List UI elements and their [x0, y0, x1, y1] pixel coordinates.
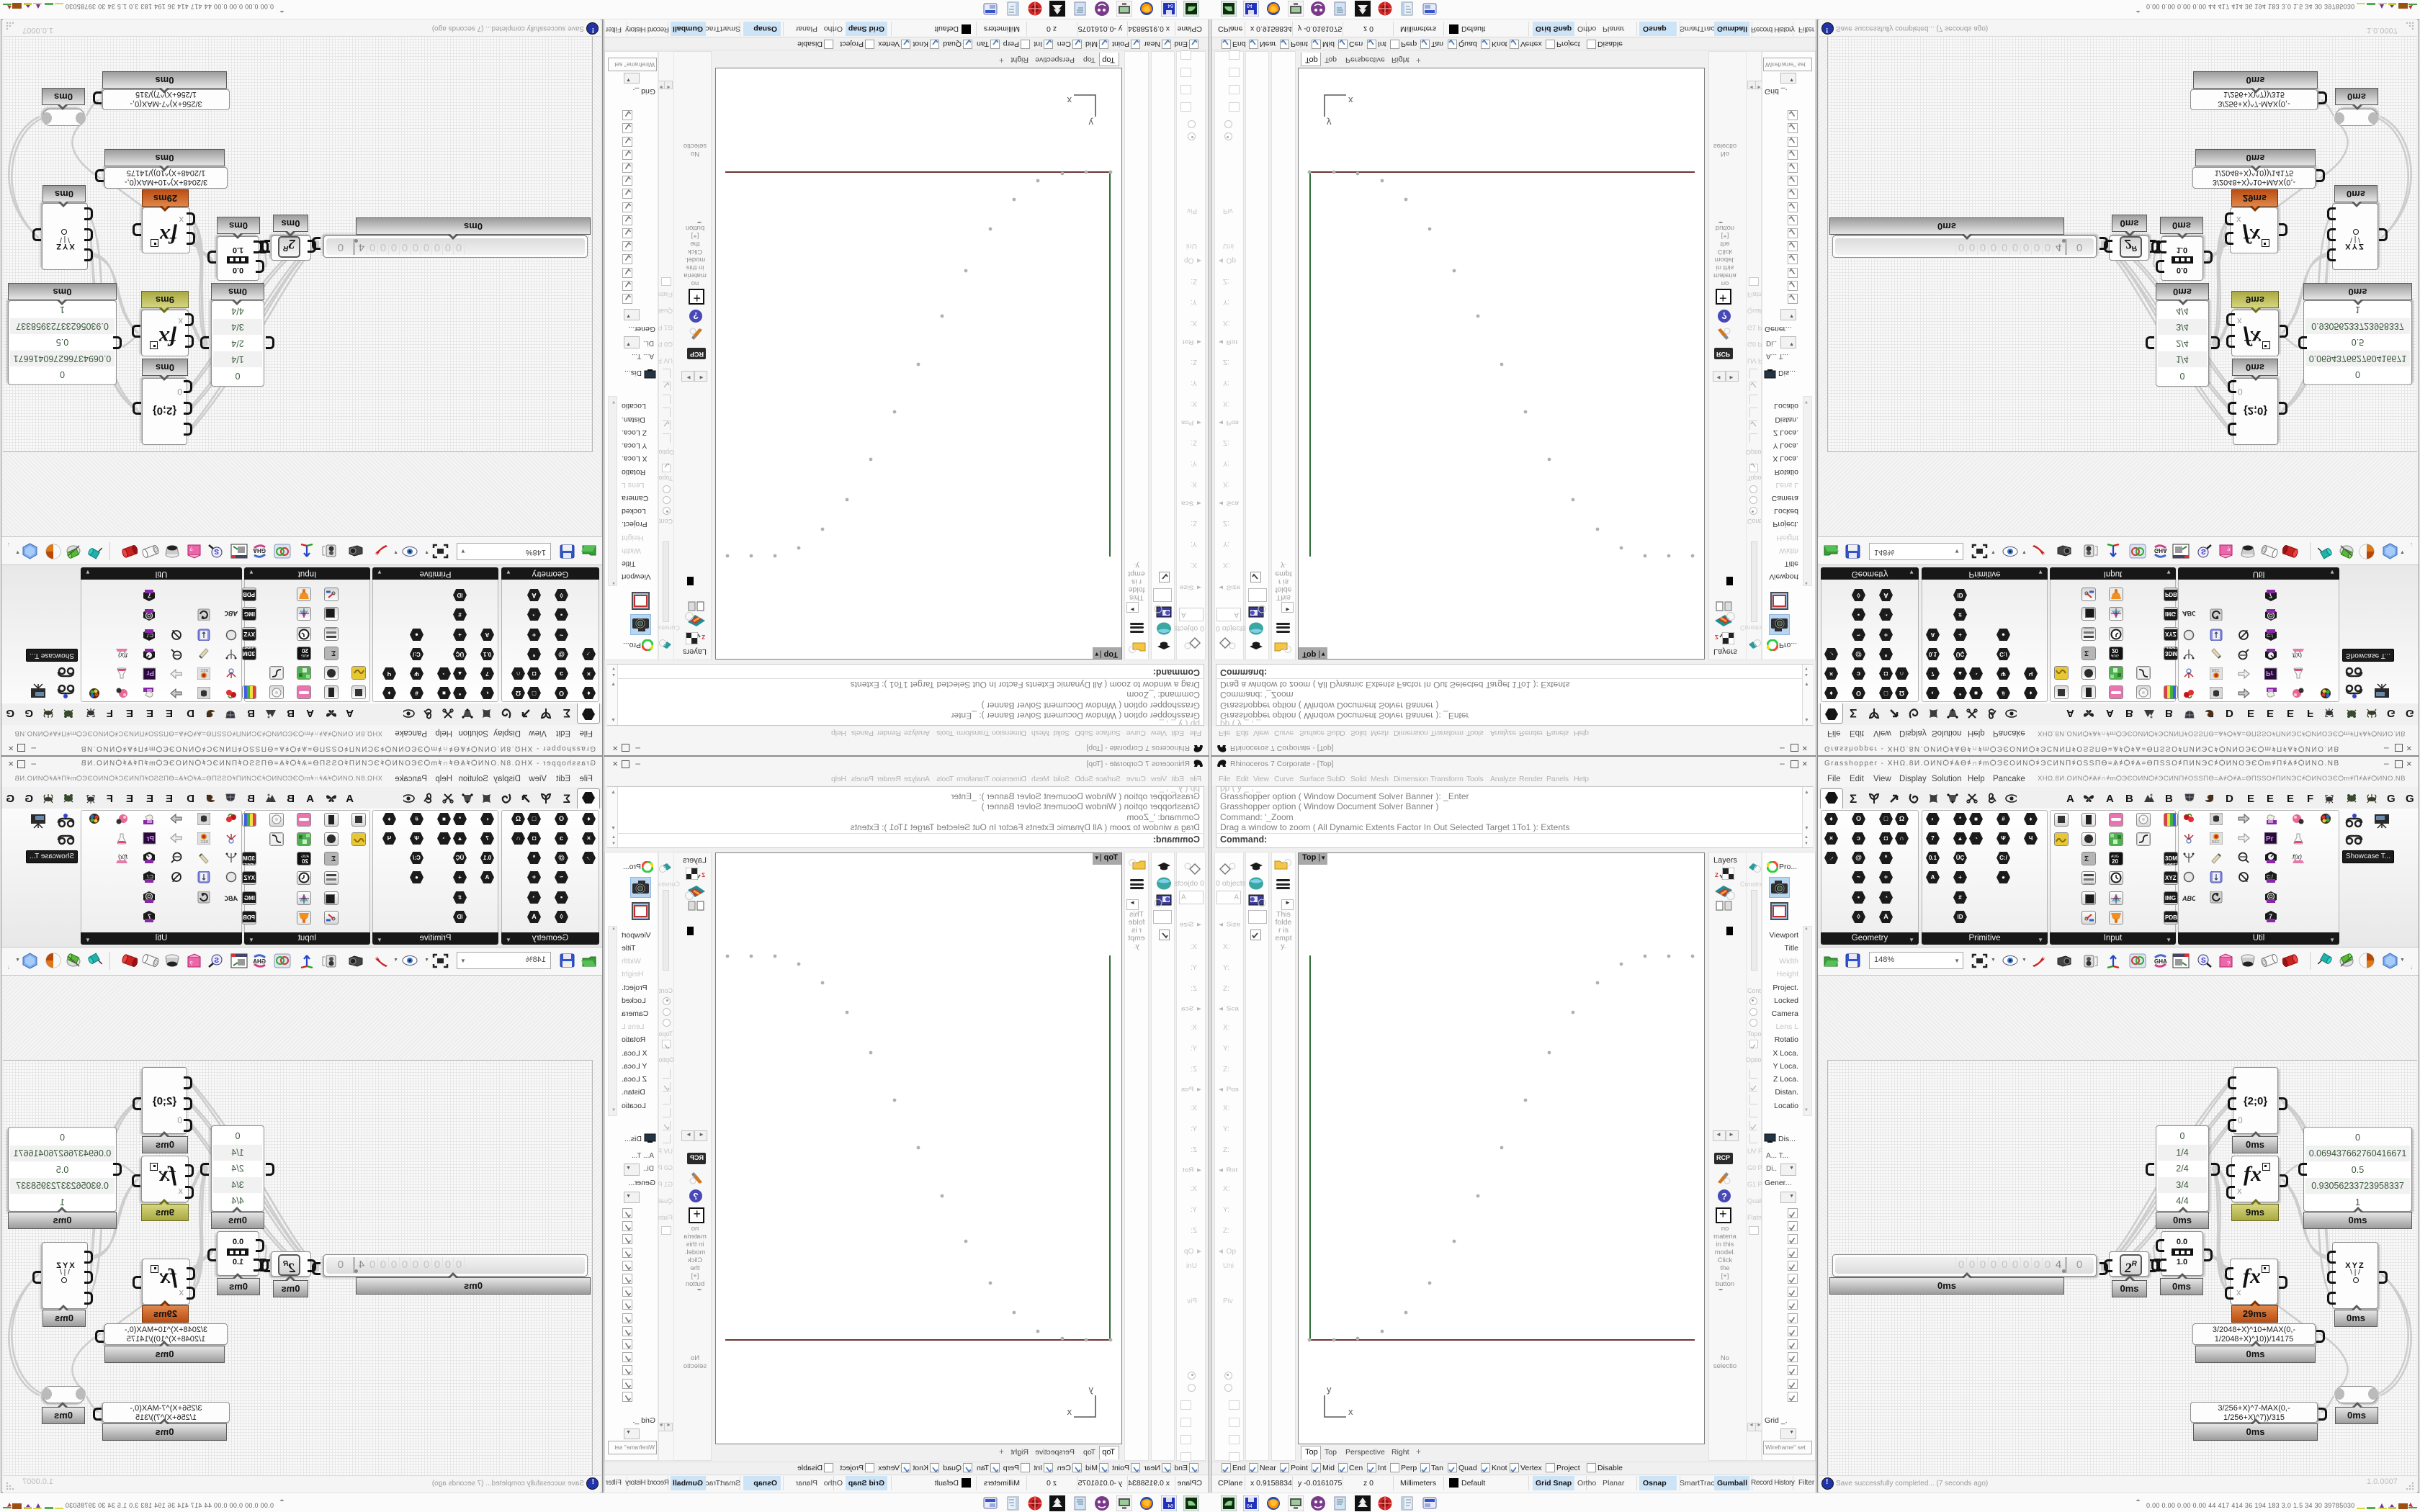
svg-text:REC: REC	[200, 667, 208, 672]
svg-text:3DM: 3DM	[243, 855, 255, 862]
svg-text:ABC: ABC	[2182, 610, 2195, 617]
svg-text:?: ?	[693, 1191, 699, 1202]
svg-text:x: x	[1067, 1406, 1072, 1417]
svg-text:Σ: Σ	[1850, 792, 1857, 805]
svg-text:x: x	[1348, 95, 1353, 106]
svg-text:Pr: Pr	[146, 669, 154, 677]
svg-text:ABC: ABC	[225, 895, 238, 902]
svg-text:20: 20	[2112, 858, 2118, 865]
svg-text:y: y	[1088, 117, 1093, 128]
svg-text:IMG: IMG	[2165, 895, 2176, 901]
svg-text:x: x	[1348, 1406, 1353, 1417]
svg-text:S: S	[2201, 957, 2206, 965]
svg-text:?: ?	[189, 960, 193, 967]
svg-text:y: y	[1327, 117, 1332, 128]
svg-text:Pr: Pr	[2266, 835, 2274, 843]
svg-text:z: z	[1715, 633, 1718, 641]
svg-text:z: z	[702, 871, 705, 879]
svg-text:REC: REC	[2212, 840, 2220, 845]
svg-text:S: S	[214, 547, 219, 555]
svg-text:ABC: ABC	[2182, 895, 2195, 902]
svg-text:GHA: GHA	[253, 547, 266, 554]
svg-text:64: 64	[1168, 3, 1173, 8]
svg-text:3DM: 3DM	[2165, 855, 2177, 862]
svg-text:PDB: PDB	[243, 591, 255, 598]
svg-text:REC: REC	[2212, 667, 2220, 672]
svg-text:C:/: C:/	[147, 632, 153, 637]
svg-text:Pr: Pr	[146, 835, 154, 843]
svg-text:XYZ: XYZ	[243, 875, 255, 881]
svg-text:XYZ: XYZ	[2165, 875, 2177, 881]
svg-text:z: z	[702, 633, 705, 641]
svg-text:f(x): f(x)	[118, 652, 127, 659]
svg-text:64: 64	[1168, 1504, 1173, 1509]
svg-text:REC: REC	[200, 840, 208, 845]
svg-text:64: 64	[1247, 1504, 1252, 1509]
svg-text:PDB: PDB	[2165, 914, 2177, 921]
svg-text:Σ: Σ	[563, 792, 570, 805]
svg-text:IMG: IMG	[244, 895, 255, 901]
svg-text:?: ?	[2227, 545, 2231, 552]
svg-text:Σ: Σ	[563, 707, 570, 720]
svg-text:ABC: ABC	[225, 610, 238, 617]
svg-text:z: z	[1715, 871, 1718, 879]
svg-text:3DM: 3DM	[243, 650, 255, 657]
svg-text:XYZ: XYZ	[243, 631, 255, 637]
svg-text:S: S	[2201, 547, 2206, 555]
svg-text:?: ?	[693, 310, 699, 321]
svg-text:f(x): f(x)	[2293, 853, 2302, 860]
svg-text:?: ?	[1721, 310, 1727, 321]
svg-text:C:/: C:/	[147, 875, 153, 880]
svg-text:3DM: 3DM	[2165, 650, 2177, 657]
svg-text:GHA: GHA	[253, 958, 266, 965]
svg-text:C:/: C:/	[2267, 632, 2273, 637]
svg-text:Pr: Pr	[2266, 669, 2274, 677]
svg-text:y: y	[1088, 1384, 1093, 1395]
svg-text:f(x): f(x)	[118, 853, 127, 860]
svg-text:PDB: PDB	[2165, 591, 2177, 598]
svg-text:20: 20	[2112, 647, 2118, 654]
svg-text:S: S	[214, 957, 219, 965]
svg-text:GHA: GHA	[2154, 547, 2167, 554]
svg-text:GHA: GHA	[2154, 958, 2167, 965]
svg-text:IMG: IMG	[244, 611, 255, 617]
svg-text:XYZ: XYZ	[2165, 631, 2177, 637]
svg-text:x: x	[1067, 95, 1072, 106]
svg-text:?: ?	[189, 545, 193, 552]
svg-text:20: 20	[302, 858, 308, 865]
svg-text:Σ: Σ	[1850, 707, 1857, 720]
svg-text:?: ?	[2227, 960, 2231, 967]
svg-text:PDB: PDB	[243, 914, 255, 921]
svg-text:20: 20	[302, 647, 308, 654]
svg-text:?: ?	[1721, 1191, 1727, 1202]
svg-text:64: 64	[1247, 3, 1252, 8]
svg-text:f(x): f(x)	[2293, 652, 2302, 659]
svg-text:Σ: Σ	[2084, 649, 2089, 657]
svg-text:C:/: C:/	[2267, 875, 2273, 880]
svg-text:Σ: Σ	[331, 855, 336, 863]
svg-text:Σ: Σ	[331, 649, 336, 657]
svg-text:Σ: Σ	[2084, 855, 2089, 863]
svg-text:IMG: IMG	[2165, 611, 2176, 617]
svg-text:y: y	[1327, 1384, 1332, 1395]
